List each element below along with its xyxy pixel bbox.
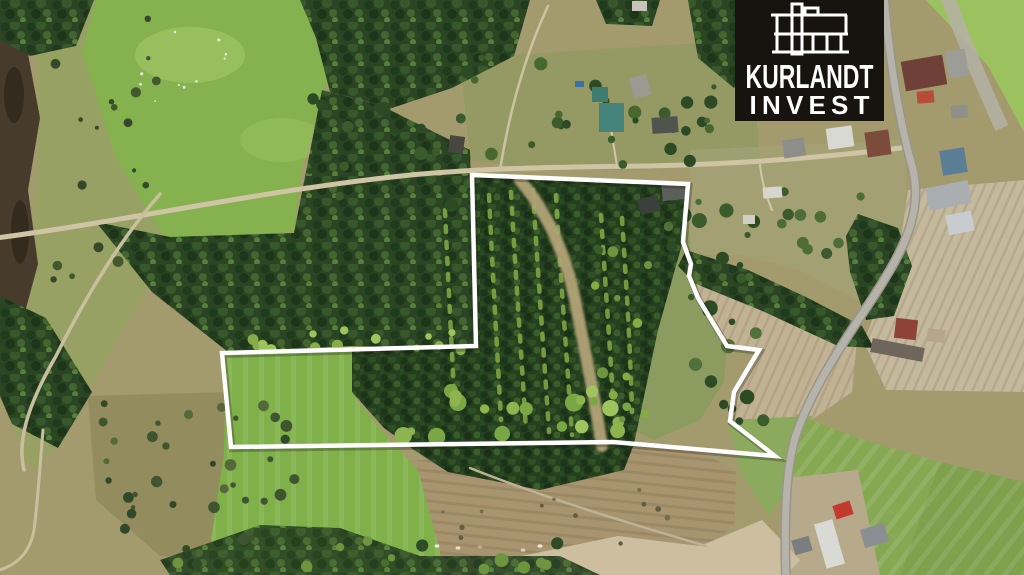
tree [740,390,755,405]
tree [719,203,733,217]
tree [371,334,381,344]
tree [704,96,717,109]
tree [270,413,280,423]
tree [173,558,184,569]
tree [655,506,661,512]
tree [552,117,564,129]
tree [783,209,794,220]
tree [336,543,344,551]
building [917,90,935,103]
building [632,1,647,11]
building [950,104,968,118]
tree [471,76,479,84]
tree [618,541,622,545]
tree [395,427,412,444]
tree [688,294,694,300]
tree [101,400,108,407]
tree [238,534,250,546]
tree [145,16,151,22]
tree [737,262,744,269]
tree [217,38,220,41]
tree [821,248,832,259]
tree [78,117,83,122]
tree [123,492,134,503]
tree [815,211,827,223]
tree [744,232,750,238]
tree [618,392,625,399]
animal-dot [521,548,526,551]
aerial-listing-photo: KURLANDT INVEST [0,0,1024,575]
tree [425,333,432,340]
tree [729,319,736,326]
tree [619,416,625,422]
tree [432,148,440,156]
tree [342,121,353,132]
tree [444,198,458,212]
tree [178,84,180,86]
tree [716,252,729,265]
tree [132,492,137,497]
tree [459,525,464,530]
tree [461,65,474,78]
tree [705,375,717,387]
tree [494,426,510,442]
tree [267,456,273,462]
tree [120,524,130,534]
tree [105,477,111,483]
tree [182,545,190,553]
tree [684,155,696,167]
tree [220,484,229,493]
tree [306,168,312,174]
tree [520,402,533,415]
tree [140,72,143,75]
tree [95,126,99,130]
tree [111,437,118,444]
tree [225,459,237,471]
tree [479,564,490,575]
tree [195,80,198,83]
tree [289,474,299,484]
tree [833,238,844,249]
tree [104,458,110,464]
tree [448,329,455,336]
tree [595,246,603,254]
tree [363,536,373,546]
tree [777,219,787,229]
tree [692,213,707,228]
tree [597,367,608,378]
water-shadow [4,67,24,123]
tree [441,510,444,513]
tree [131,87,141,97]
tree [113,256,124,267]
tree [608,136,615,143]
tree [664,143,676,155]
tree [99,418,108,427]
building [864,129,891,157]
tree [857,192,865,200]
tree [518,561,530,573]
tree [609,391,618,400]
tree [506,402,519,415]
tree [664,222,673,231]
tree [151,476,162,487]
tree [258,400,269,411]
tree [689,358,702,371]
tree [485,148,498,161]
tree [705,124,714,133]
tree [480,510,484,514]
tree [478,55,484,61]
tree [666,241,677,252]
tree [208,502,220,514]
building [599,103,624,132]
building [939,147,968,176]
tree [628,106,641,119]
tree [414,147,427,160]
tree [281,420,293,432]
tree [301,561,312,572]
tree [795,209,807,221]
tree [249,535,255,541]
tree [551,537,563,549]
tree [459,535,464,540]
tree [162,442,169,449]
forest-clump [596,0,660,26]
tree [309,330,316,337]
tree [147,431,158,442]
tree [210,461,216,467]
tree [590,397,599,406]
tree [540,504,544,508]
tree [591,281,599,289]
tree [174,31,177,34]
tree [275,489,287,501]
tree [632,117,638,123]
tree [736,273,746,283]
tree [281,435,290,444]
tree [316,99,327,110]
tree [192,559,202,569]
tree [681,96,693,108]
tree [69,273,75,279]
tree [78,180,87,189]
tree [528,141,535,148]
tree [224,58,226,60]
tree [719,400,728,409]
tree [450,396,460,406]
building [651,116,678,134]
tree [242,497,249,504]
tree [51,59,61,69]
tree [111,104,118,111]
tree [623,402,632,411]
tree [340,326,348,334]
tree [132,168,136,172]
tree [644,261,652,269]
tree [573,513,578,518]
building [926,328,945,343]
tree [607,246,618,257]
tree [681,126,691,136]
tree [552,498,556,502]
tree [637,488,641,492]
animal-dot [478,545,483,548]
tree [797,237,809,249]
tree [557,421,568,432]
tree [495,553,509,567]
tree [576,395,586,405]
tree [642,502,647,507]
animal-dot [456,546,461,549]
tree [94,242,104,252]
tree [261,498,268,505]
tree [155,421,160,426]
tree [595,268,601,274]
tree [562,120,571,129]
tree [50,276,56,282]
animal-dot [435,544,440,547]
tree [704,118,710,124]
tree [225,53,228,56]
tree [109,99,114,104]
building [894,318,918,341]
tree [614,295,620,301]
tree [340,162,349,171]
tree [391,129,398,136]
tree [622,373,630,381]
tree [416,539,428,551]
building [743,215,755,224]
tree [575,420,588,433]
tree [757,414,769,426]
tree [230,482,236,488]
tree [750,327,762,339]
tree [143,182,150,189]
tree [613,344,619,350]
tree [139,83,142,86]
tree [170,501,177,508]
meadow-highlight [135,27,245,83]
tree [184,410,193,419]
tree [711,84,716,89]
tree [127,509,137,519]
brand-logo: KURLANDT INVEST [735,0,884,121]
tree [602,400,618,416]
tree [695,199,701,205]
tree [641,410,649,418]
tree [154,100,156,102]
tree [586,385,598,397]
tree [253,343,260,350]
building [763,186,783,198]
tree [233,416,238,421]
tree [53,261,63,271]
tree [633,318,643,328]
tree [388,554,395,561]
tree [183,86,186,89]
tree [196,549,203,556]
tree [146,56,150,60]
tree [124,118,133,127]
animal-dot [538,544,543,547]
tree [665,515,671,521]
building [592,87,608,102]
tree [756,292,763,299]
tree [152,77,161,86]
tree [618,160,627,169]
tree [335,192,344,201]
tree [534,57,547,70]
tree [416,124,426,134]
tree [374,103,383,112]
tree [480,404,489,413]
building [448,135,465,154]
tree [456,114,466,124]
building [782,138,806,159]
building [826,125,855,149]
tree [555,111,563,119]
building [575,81,584,87]
tree [541,560,551,570]
